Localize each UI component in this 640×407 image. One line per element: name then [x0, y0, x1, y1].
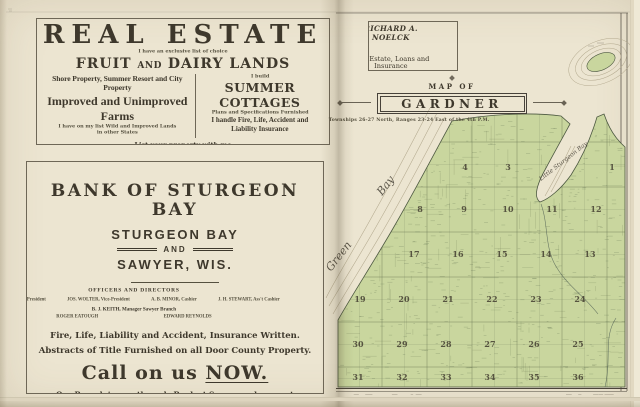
bank-city-1: STURGEON BAY — [27, 227, 323, 242]
section-number: 9 — [461, 204, 467, 214]
plans-line: Plans and Specifications Furnished — [209, 110, 311, 115]
officers-row: HENRY FETZER, President JOS. WOLTER, Vic… — [26, 298, 283, 303]
real-estate-title: REAL ESTATE — [37, 22, 329, 49]
section-number: 34 — [484, 372, 496, 382]
officer-vice-president: JOS. WOLTER, Vice-President — [67, 298, 130, 303]
title-ribbon: GARDNER — [377, 93, 527, 114]
section-number: 33 — [440, 372, 452, 382]
bank-city-2: SAWYER, WIS. — [27, 257, 323, 272]
director-2: EDWARD REYNOLDS — [164, 315, 212, 320]
i-build-line: I build — [209, 74, 311, 79]
call-on-us-line: Call on us NOW. — [27, 362, 323, 384]
right-column: I build SUMMER COTTAGES Plans and Specif… — [196, 74, 324, 139]
section-number: 16 — [452, 249, 464, 259]
section-number: 4 — [462, 162, 468, 172]
atlas-spread: 4318910111218171615141319202122232430292… — [0, 0, 640, 407]
section-number: 26 — [528, 339, 540, 349]
real-estate-ad: REAL ESTATE I have an exclusive list of … — [36, 18, 330, 145]
insurance-line-2: Liability Insurance — [198, 125, 322, 133]
cta-text: Call on us — [82, 362, 206, 384]
fruit-word: FRUIT — [76, 56, 132, 72]
flourish-right — [533, 102, 563, 103]
map-title: GARDNER — [380, 96, 525, 112]
left-column: Shore Property, Summer Resort and City P… — [42, 74, 196, 139]
section-number: 21 — [442, 294, 453, 304]
section-number: 3 — [505, 162, 511, 172]
shore-property-line: Shore Property, Summer Resort and City P… — [44, 74, 191, 92]
officers-block: OFFICERS AND DIRECTORS HENRY FETZER, Pre… — [27, 287, 323, 319]
section-number: 36 — [572, 372, 584, 382]
section-number: 12 — [590, 204, 601, 214]
real-estate-tagline: I have an exclusive list of choice — [63, 49, 302, 54]
section-number: 18 — [364, 249, 376, 259]
officer-cashier: A. B. MINOR, Cashier — [151, 298, 197, 303]
director-1: ROGER EATOUGH — [56, 315, 98, 320]
abstracts-line: Abstracts of Title Furnished on all Door… — [27, 346, 323, 356]
section-number: 32 — [396, 372, 407, 382]
divider-rule — [131, 282, 219, 283]
section-number: 8 — [417, 204, 423, 214]
island — [561, 29, 640, 95]
page-edge-bottom — [0, 397, 640, 407]
map-title-block: MAP OF GARDNER Townships 26-27 North, Ra… — [352, 76, 552, 125]
insurance-line-1: I handle Fire, Life, Accident and — [198, 116, 322, 124]
section-number: 11 — [546, 204, 557, 214]
page-edge-right — [630, 0, 640, 407]
section-number: 13 — [584, 249, 596, 259]
section-number: 22 — [486, 294, 497, 304]
island-label-marks — [588, 43, 604, 46]
officer-president: HENRY FETZER, President — [26, 298, 46, 303]
section-number: 14 — [540, 249, 552, 259]
section-number: 31 — [352, 372, 363, 382]
other-states-line: in other States — [57, 130, 177, 135]
bank-ad: BANK OF STURGEON BAY STURGEON BAY AND SA… — [26, 161, 324, 394]
section-number: 19 — [354, 294, 366, 304]
page-corner-mark — [8, 9, 12, 11]
title-banner: GARDNER — [377, 93, 527, 114]
section-number: 25 — [572, 339, 583, 349]
book-gutter — [320, 0, 354, 407]
and-label: AND — [163, 245, 186, 254]
section-number: 17 — [408, 249, 419, 259]
bank-and-row: AND — [27, 245, 323, 254]
page-edge-left — [0, 0, 7, 407]
officer-asst-cashier: J. H. STEWART, Ass't Cashier — [218, 298, 280, 303]
section-number: 28 — [440, 339, 452, 349]
section-number: 20 — [398, 294, 410, 304]
rule-right — [193, 248, 233, 251]
noelck-business-card: RICHARD A. NOELCK Real Estate, Loans and… — [368, 21, 458, 71]
officers-heading: OFFICERS AND DIRECTORS — [26, 287, 283, 293]
real-estate-columns: Shore Property, Summer Resort and City P… — [37, 74, 329, 139]
card-name: RICHARD A. NOELCK — [368, 25, 436, 42]
cta-now: NOW. — [205, 362, 268, 384]
section-number: 15 — [496, 249, 507, 259]
summer-cottages-line: SUMMER COTTAGES — [198, 80, 322, 110]
wild-lands-line: I have on my list Wild and Improved Land… — [57, 124, 177, 129]
list-property-line: List your property with me — [37, 141, 329, 145]
branch-manager-line: B. J. KEITH, Manager Sawyer Branch — [26, 307, 283, 312]
section-number: 29 — [396, 339, 408, 349]
directors-row: ROGER EATOUGH EDWARD REYNOLDS — [26, 315, 283, 320]
dairy-lands-word: DAIRY LANDS — [168, 56, 290, 72]
bank-title: BANK OF STURGEON BAY — [27, 182, 323, 219]
and-word: AND — [137, 61, 162, 71]
improved-farms-line: Improved and Unimproved Farms — [44, 94, 191, 124]
section-number: 30 — [352, 339, 364, 349]
section-number: 10 — [502, 204, 514, 214]
map-subtitle: Townships 26-27 North, Ranges 23-24 East… — [352, 117, 552, 125]
map-of-kicker: MAP OF — [352, 82, 552, 91]
section-number: 23 — [530, 294, 542, 304]
ornament-diamond — [449, 75, 455, 81]
card-services-line: Real Estate, Loans and Insurance — [368, 56, 436, 71]
section-number: 24 — [574, 294, 586, 304]
section-number: 35 — [528, 372, 539, 382]
bank-closing-paragraph: Our Branch is now the only Bank at Sawye… — [40, 390, 310, 394]
section-number: 1 — [609, 162, 615, 172]
insurance-written-line: Fire, Life, Liability and Accident, Insu… — [27, 331, 323, 341]
fruit-dairy-line: FRUIT AND DAIRY LANDS — [37, 57, 329, 71]
rule-left — [117, 248, 157, 251]
section-number: 27 — [484, 339, 495, 349]
